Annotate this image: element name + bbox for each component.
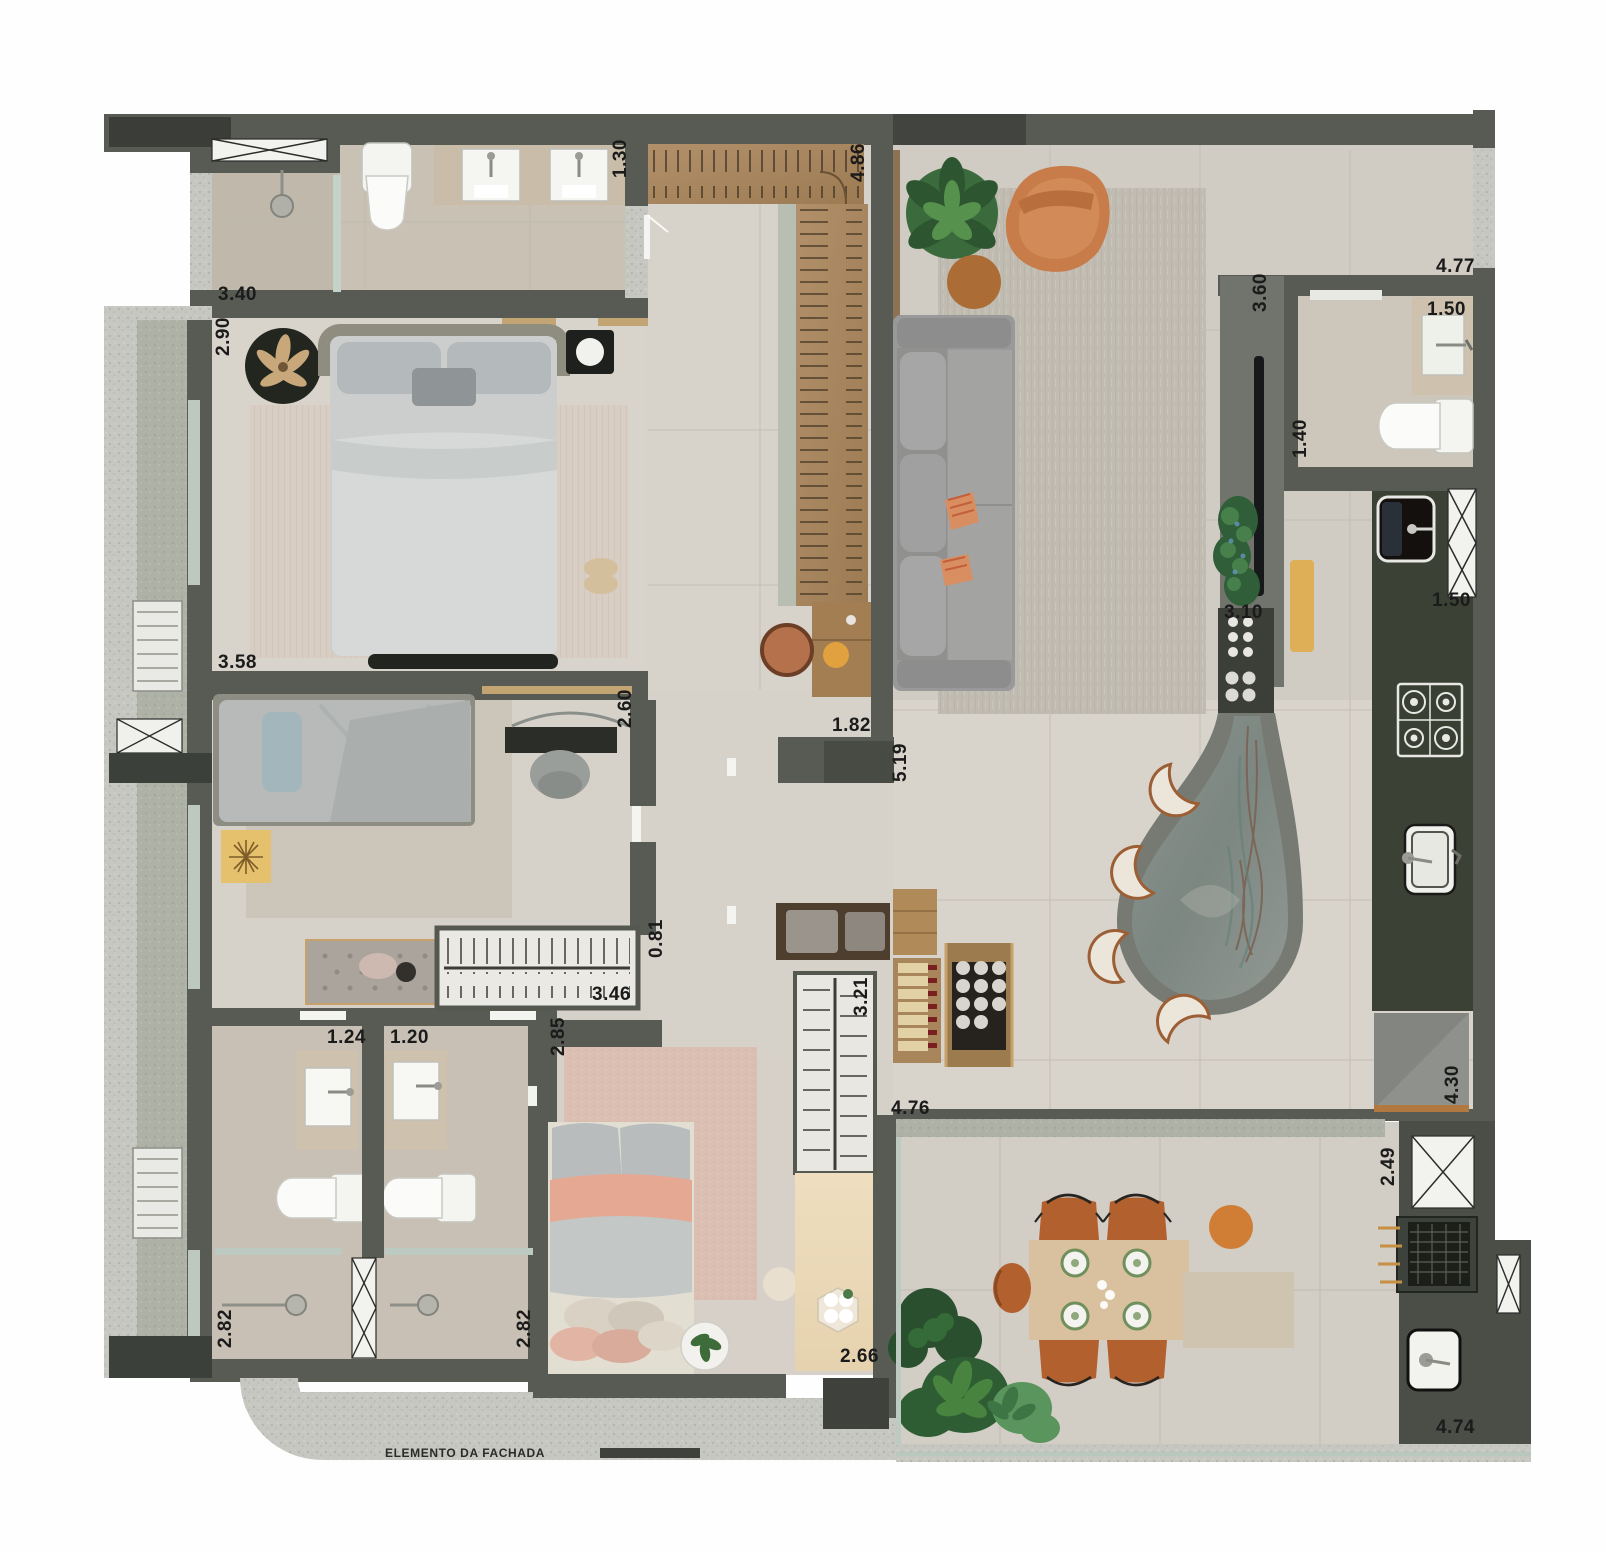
- svg-text:4.76: 4.76: [891, 1098, 930, 1119]
- svg-text:2.60: 2.60: [615, 689, 636, 728]
- svg-text:3.40: 3.40: [218, 284, 257, 305]
- svg-text:1.40: 1.40: [1290, 419, 1311, 458]
- svg-text:2.66: 2.66: [840, 1346, 879, 1367]
- svg-text:1.20: 1.20: [390, 1027, 429, 1048]
- svg-text:1.50: 1.50: [1432, 590, 1471, 611]
- svg-text:2.49: 2.49: [1378, 1147, 1399, 1186]
- svg-text:1.50: 1.50: [1427, 299, 1466, 320]
- svg-text:4.86: 4.86: [848, 143, 869, 182]
- svg-text:2.82: 2.82: [215, 1309, 236, 1348]
- svg-text:4.74: 4.74: [1436, 1417, 1475, 1438]
- svg-text:2.85: 2.85: [548, 1017, 569, 1056]
- svg-text:2.90: 2.90: [213, 317, 234, 356]
- svg-text:1.82: 1.82: [832, 715, 871, 736]
- svg-text:ELEMENTO DA FACHADA: ELEMENTO DA FACHADA: [385, 1446, 545, 1460]
- svg-text:3.46: 3.46: [592, 984, 631, 1005]
- svg-text:1.30: 1.30: [610, 139, 631, 178]
- svg-text:3.21: 3.21: [851, 977, 872, 1016]
- svg-text:3.58: 3.58: [218, 652, 257, 673]
- svg-text:4.77: 4.77: [1436, 256, 1475, 277]
- svg-text:3.60: 3.60: [1250, 273, 1271, 312]
- svg-text:3.10: 3.10: [1224, 602, 1263, 623]
- svg-text:1.24: 1.24: [327, 1027, 366, 1048]
- svg-text:2.82: 2.82: [514, 1309, 535, 1348]
- svg-text:4.30: 4.30: [1442, 1065, 1463, 1104]
- svg-text:5.19: 5.19: [890, 743, 911, 782]
- svg-text:0.81: 0.81: [646, 919, 667, 958]
